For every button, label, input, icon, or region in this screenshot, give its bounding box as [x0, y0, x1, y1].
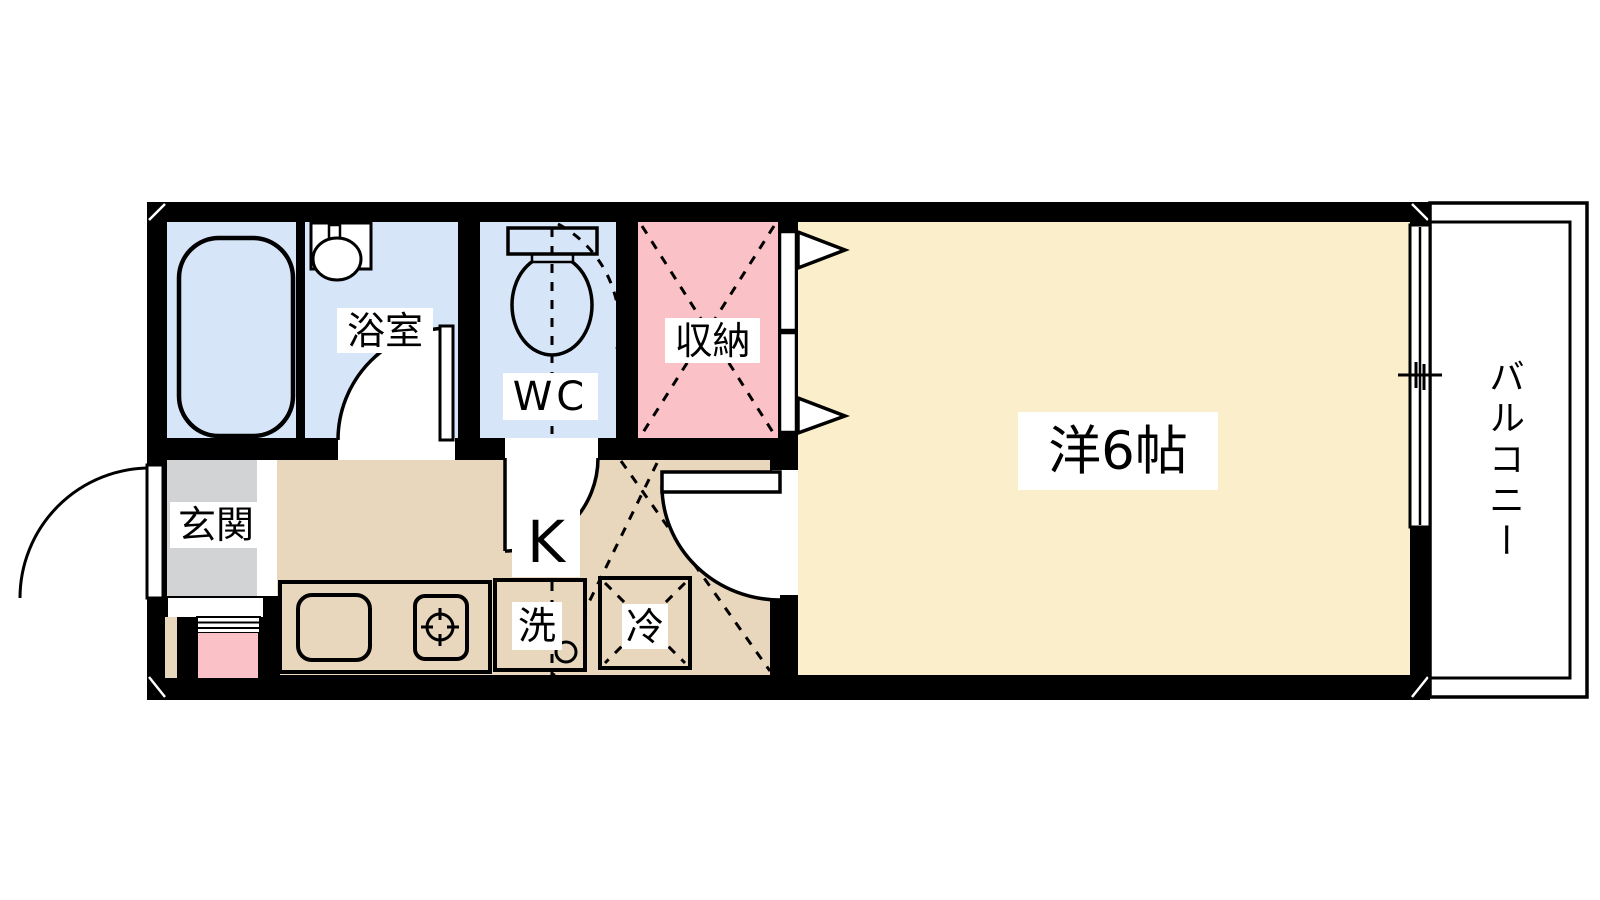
shoe-cabinet	[198, 633, 258, 678]
wall-bath-wc	[458, 222, 480, 438]
closet-label: 収納	[665, 318, 760, 363]
entrance-step	[168, 598, 263, 617]
floorplan-drawing	[0, 0, 1600, 900]
entrance-steps-box	[197, 617, 260, 633]
main-room-label: 洋6帖	[1018, 412, 1218, 490]
mainroom-door-leaf	[662, 472, 780, 492]
wall-top	[147, 202, 1430, 222]
wc-label: WC	[503, 373, 598, 420]
porch-strip	[165, 617, 177, 678]
entrance-label: 玄関	[170, 502, 262, 548]
entrance-door-swing	[20, 468, 150, 598]
wall-bottom	[147, 675, 1430, 700]
bathroom-sink-basin	[313, 238, 361, 280]
bathtub-partition	[296, 222, 305, 438]
kitchen-label: K	[512, 506, 580, 577]
entrance-door-leaf	[147, 465, 163, 598]
fridge-label: 冷	[622, 604, 668, 649]
closet-door-panel-top	[780, 232, 796, 330]
closet-door-panel-bottom	[780, 333, 796, 432]
bathroom-door-opening	[338, 438, 455, 460]
floorplan-page: 浴室 WC 収納 玄関 K 洗 冷 洋6帖 バルコニー	[0, 0, 1600, 900]
wall-under-wetrooms	[167, 438, 798, 460]
washer-label: 洗	[512, 602, 562, 650]
bathroom-label: 浴室	[337, 308, 433, 353]
wc-door-opening	[505, 438, 598, 460]
bathroom-door-leaf	[440, 326, 453, 440]
balcony-label: バルコニー	[1482, 340, 1524, 580]
